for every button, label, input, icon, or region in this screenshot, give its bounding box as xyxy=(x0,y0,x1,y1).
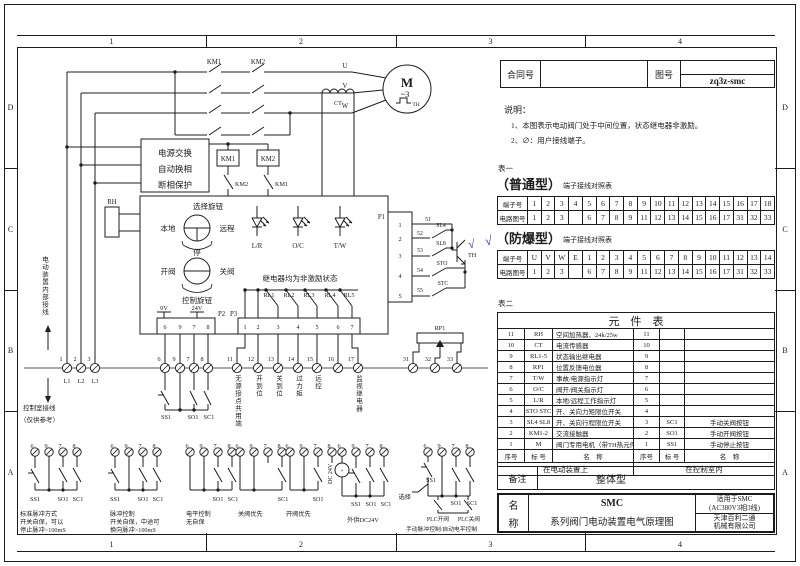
close-valve-label: 关阀 xyxy=(220,266,235,276)
motor-m-label: M xyxy=(401,75,413,90)
p3-pin-2: 2 xyxy=(256,324,259,331)
terminal-12: 12 xyxy=(248,356,254,363)
v24-label: 24V xyxy=(192,305,203,312)
tw-led-label: T/W xyxy=(334,243,347,250)
km2-interlock-label: KM2 xyxy=(235,181,248,188)
g1-ss1: SS1 xyxy=(30,496,40,503)
ss1-label: SS1 xyxy=(161,414,171,421)
p1-pin-1: 1 xyxy=(398,222,401,229)
km2-coil-label: KM2 xyxy=(261,156,276,163)
g5-so1: SO1 xyxy=(312,496,323,503)
g7-selector-label: 选择 xyxy=(399,493,412,501)
g1-caption-2: 开关自保，可以 xyxy=(20,518,63,526)
p3-pin-7: 7 xyxy=(350,324,353,331)
power-rails xyxy=(65,72,141,363)
g2-caption-1: 脉冲控制 xyxy=(110,510,135,518)
wire-54-label: 54 xyxy=(417,268,423,274)
rl3-label: RL3 xyxy=(303,292,314,299)
sc1-label: SC1 xyxy=(204,414,215,421)
control-knob: 开阀 关阀 控制旋钮 xyxy=(161,258,235,305)
wire-51-label: 51 xyxy=(425,217,431,223)
limit-torque-switches: 51 52 SL4 53 SL8 TH 54 STO 55 STC √ xyxy=(412,217,477,296)
p3-pin-6: 6 xyxy=(336,324,339,331)
rl1-label: RL1 xyxy=(263,292,274,299)
p1-label: P1 xyxy=(378,214,385,221)
power-exchange-box: 电源交换 自动换相 断相保护 xyxy=(141,139,209,192)
lr-led-label: L/R xyxy=(252,243,263,250)
schematic: KM1 KM2 U V W M ~3 TH CT 电源交换 自动换相 断相保护 xyxy=(0,0,800,566)
selector-knob: 选择旋钮 本地 远程 停 xyxy=(161,201,235,257)
terminal-8: 8 xyxy=(200,356,203,363)
g3-so1: SO1 xyxy=(212,496,223,503)
motor-symbol: U V W M ~3 TH xyxy=(342,63,431,113)
heater-rh: RH xyxy=(105,199,140,237)
option-group-external-dc24v: 6 9 7 8 + SS1 SO1 SC1 外供DC24V xyxy=(335,443,391,524)
g6-sc1: SC1 xyxy=(381,501,392,508)
motor-th-label: TH xyxy=(412,102,419,108)
terminal-14: 14 xyxy=(288,356,294,363)
g1-so1: SO1 xyxy=(57,496,68,503)
rl4-label: RL4 xyxy=(324,292,335,299)
l2-label: L2 xyxy=(78,378,85,385)
relay-state-note: 继电器均为非激励状态 xyxy=(263,273,338,283)
g5-caption: 开阀优先 xyxy=(286,510,311,518)
auto-phase-label: 自动换相 xyxy=(158,164,192,174)
contactor-contacts: KM1 KM2 xyxy=(67,59,352,135)
g2-caption-2: 开关自保，中途可 xyxy=(110,518,160,526)
stop-label: 停 xyxy=(193,247,201,257)
dc-source-plus: + xyxy=(340,468,344,475)
rh-label: RH xyxy=(107,199,117,206)
km1-interlock-label: KM1 xyxy=(275,181,288,188)
p3-pin-4: 4 xyxy=(296,324,299,331)
terminal-15: 15 xyxy=(307,356,313,363)
option-group-standard-pulse: 6 9 7 8 SS1 SO1 SC1 标准脉冲方式 开关自保，可以 停止脉冲>… xyxy=(20,443,83,534)
p1-pin-5: 5 xyxy=(398,293,401,300)
g7-caption: 手动脉冲控制/自动电平控制 xyxy=(406,525,477,533)
p2-pin-6: 6 xyxy=(163,324,166,331)
terminal-3: 3 xyxy=(87,356,90,363)
g7-ss1: SS1 xyxy=(426,477,436,484)
phase-w-label: W xyxy=(342,103,349,110)
ct-label: CT xyxy=(334,100,342,107)
boundary-arrows xyxy=(45,325,51,403)
terminal-16: 16 xyxy=(328,356,334,363)
option-group-plc: 6 9 7 8 SS1 选择 SO1 SC1 PLC开阀 PLC关阀 手动脉冲控… xyxy=(399,443,481,533)
wire-53-label: 53 xyxy=(417,248,423,254)
sl8-label: SL8 xyxy=(436,241,446,247)
user-terminals: 1 2 3 6 9 7 8 11 12 13 14 15 16 17 31 32… xyxy=(59,356,461,385)
g2-caption-3: 换向脉冲>100mS xyxy=(110,526,156,534)
terminal-6: 6 xyxy=(157,356,160,363)
drawing-sheet: 1 2 3 4 1 2 3 4 D C B A D C B A 合同号 图号 z… xyxy=(0,0,800,566)
rp1-label: RP1 xyxy=(435,325,446,332)
current-transformer: CT xyxy=(322,89,354,196)
option-group-pulse-control: 6 9 7 8 SS1 SO1 SC1 脉冲控制 开关自保，中途可 换向脉冲>1… xyxy=(108,443,163,534)
p3-pin-1: 1 xyxy=(243,324,246,331)
g4-sc1: SC1 xyxy=(278,496,289,503)
g3-caption-2: 无自保 xyxy=(186,518,205,526)
indicator-leds: L/R O/C T/W xyxy=(252,206,352,250)
terminal-11: 11 xyxy=(227,356,233,363)
p1-connector: P1 1 2 3 4 5 xyxy=(378,212,412,302)
oc-led-label: O/C xyxy=(292,243,304,250)
terminal-7: 7 xyxy=(186,356,189,363)
terminal-33: 33 xyxy=(447,356,453,363)
terminal-31: 31 xyxy=(403,356,409,363)
g2-so1: SO1 xyxy=(137,496,148,503)
km2-contacts-label: KM2 xyxy=(251,59,266,66)
g6-ss1: SS1 xyxy=(351,501,361,508)
sto-label: STO xyxy=(437,261,448,267)
g1-sc1: SC1 xyxy=(73,496,84,503)
g6-caption: 外供DC24V xyxy=(347,516,379,524)
wire-55-label: 55 xyxy=(417,288,423,294)
rp1-potentiometer: RP1 xyxy=(413,325,463,363)
sl4-label: SL4 xyxy=(436,223,446,229)
local-label: 本地 xyxy=(161,223,176,233)
p3-pin-3: 3 xyxy=(276,324,279,331)
p2-connector: 0V 24V 6 9 7 8 P2 xyxy=(157,305,226,334)
so1-label: SO1 xyxy=(187,414,198,421)
open-valve-label: 开阀 xyxy=(161,267,176,276)
terminal-9: 9 xyxy=(172,356,175,363)
contactor-coils: KM1 KM2 KM2 KM1 xyxy=(209,142,288,196)
control-knob-label: 控制旋钮 xyxy=(182,295,212,305)
remote-label: 远程 xyxy=(220,224,235,233)
p3-pin-5: 5 xyxy=(315,324,318,331)
wire-52-label: 52 xyxy=(417,231,423,237)
selector-knob-label: 选择旋钮 xyxy=(193,201,223,211)
stc-label: STC xyxy=(438,281,449,287)
p2-pin-8: 8 xyxy=(206,324,209,331)
rl5-label: RL5 xyxy=(343,292,354,299)
p2-label: P2 xyxy=(218,311,226,318)
p2-pin-7: 7 xyxy=(192,324,195,331)
power-exchange-label: 电源交换 xyxy=(158,148,193,158)
main-pushbuttons: SS1 SO1 SC1 xyxy=(158,373,214,421)
p2-pin-9: 9 xyxy=(178,324,181,331)
g6-so1: SO1 xyxy=(365,501,376,508)
l1-label: L1 xyxy=(64,378,71,385)
status-relays: 继电器均为非激励状态 RL1 RL2 RL3 RL4 RL5 xyxy=(243,273,358,318)
p3-connector: P3 1 2 3 4 5 6 7 xyxy=(230,311,360,334)
th-contact-label: TH xyxy=(468,252,477,259)
p1-pin-3: 3 xyxy=(398,253,401,260)
g3-sc1: SC1 xyxy=(228,496,239,503)
terminal-1: 1 xyxy=(59,356,62,363)
zero-v-label: 0V xyxy=(160,305,168,312)
option-group-level-control: 6 9 7 8 SO1 SC1 电平控制 无自保 xyxy=(185,443,238,526)
g2-sc1: SC1 xyxy=(153,496,164,503)
g1-caption-1: 标准脉冲方式 xyxy=(20,510,57,518)
phase-u-label: U xyxy=(343,63,348,70)
km1-coil-label: KM1 xyxy=(221,156,235,163)
g2-ss1: SS1 xyxy=(110,496,120,503)
option-group-open-priority: 6 9 7 8 SO1 开阀优先 xyxy=(285,443,336,518)
rl2-label: RL2 xyxy=(283,292,294,299)
option-group-close-priority: 6 9 7 8 SC1 关阀优先 xyxy=(235,443,288,518)
plc-open-label: PLC开阀 xyxy=(427,515,449,523)
km1-contacts-label: KM1 xyxy=(207,59,221,66)
p3-label: P3 xyxy=(230,311,238,318)
p1-pin-4: 4 xyxy=(398,273,401,280)
terminal-13: 13 xyxy=(268,356,274,363)
terminal-32: 32 xyxy=(425,356,431,363)
g1-caption-3: 停止脉冲>100mS xyxy=(20,526,66,534)
terminal-2: 2 xyxy=(73,356,76,363)
l3-label: L3 xyxy=(92,378,99,385)
phase-failure-label: 断相保护 xyxy=(158,180,192,190)
plc-close-label: PLC关阀 xyxy=(458,515,480,523)
p1-pin-2: 2 xyxy=(398,236,401,243)
g4-caption: 关阀优先 xyxy=(238,510,263,518)
control-box xyxy=(140,196,388,334)
g7-so1: SO1 xyxy=(450,500,461,507)
handwritten-check-schematic: √ xyxy=(467,237,476,252)
terminal-17: 17 xyxy=(348,356,354,363)
g3-caption-1: 电平控制 xyxy=(186,510,211,518)
